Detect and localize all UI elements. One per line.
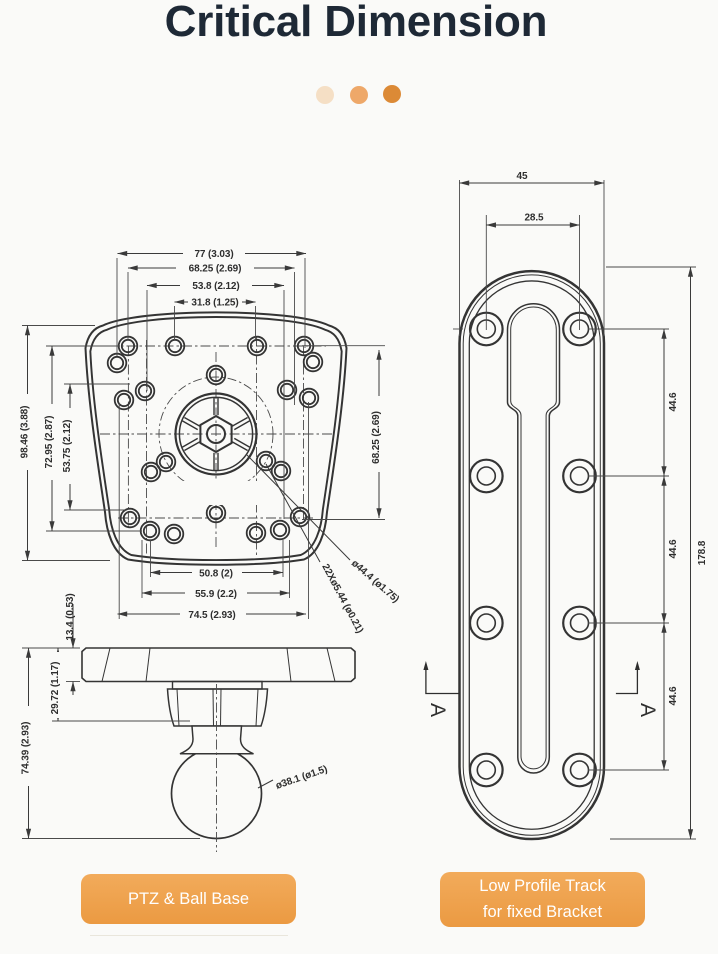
- svg-text:74.5 (2.93): 74.5 (2.93): [188, 610, 235, 621]
- svg-text:44.6: 44.6: [668, 539, 679, 559]
- svg-text:98.46 (3.88): 98.46 (3.88): [20, 406, 31, 459]
- svg-text:A: A: [426, 703, 449, 717]
- svg-text:44.6: 44.6: [668, 392, 679, 412]
- svg-text:77 (3.03): 77 (3.03): [194, 249, 233, 260]
- svg-text:31.8 (1.25): 31.8 (1.25): [191, 298, 238, 309]
- svg-text:28.5: 28.5: [524, 213, 544, 224]
- svg-text:50.8 (2): 50.8 (2): [199, 569, 233, 580]
- svg-text:45: 45: [517, 171, 528, 182]
- svg-text:13.4 (0.53): 13.4 (0.53): [65, 593, 76, 640]
- svg-text:55.9 (2.2): 55.9 (2.2): [195, 589, 237, 600]
- svg-text:53.75 (2.12): 53.75 (2.12): [62, 420, 73, 473]
- svg-text:29.72 (1.17): 29.72 (1.17): [50, 662, 61, 715]
- svg-text:68.25 (2.69): 68.25 (2.69): [189, 264, 242, 275]
- svg-text:ø38.1 (ø1.5): ø38.1 (ø1.5): [274, 764, 328, 792]
- svg-text:68.25 (2.69): 68.25 (2.69): [371, 411, 382, 464]
- svg-text:74.39 (2.93): 74.39 (2.93): [21, 722, 32, 775]
- svg-text:44.6: 44.6: [668, 686, 679, 706]
- svg-text:A: A: [636, 703, 659, 717]
- svg-text:ø44.4 (ø1.75): ø44.4 (ø1.75): [349, 558, 401, 605]
- svg-text:53.8 (2.12): 53.8 (2.12): [192, 281, 239, 292]
- svg-text:72.95 (2.87): 72.95 (2.87): [44, 416, 55, 469]
- svg-text:178.8: 178.8: [697, 540, 708, 565]
